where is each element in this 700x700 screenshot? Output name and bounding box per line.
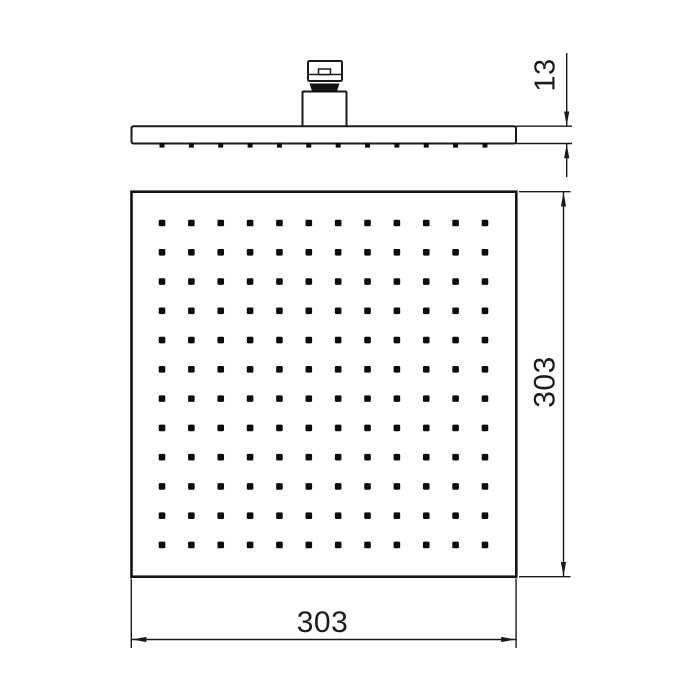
nozzle-dot [159,542,166,549]
nozzle-dot [159,512,166,519]
nozzle-dot [276,278,283,285]
nozzle-dot [247,542,254,549]
nozzle-dot [394,308,401,315]
nozzle-dot [306,395,313,402]
nozzle-dot [276,512,283,519]
nozzle-dot [423,249,430,256]
nozzle-dot [159,483,166,490]
nozzle-dot [306,249,313,256]
nozzle-dot [452,395,459,402]
nozzle-dot [335,425,342,432]
nozzle-dot [189,143,194,148]
nozzle-dot [247,454,254,461]
nozzle-dot [276,483,283,490]
nozzle-dot [364,483,371,490]
nozzle-dot [188,395,195,402]
thickness-dimension: 13 [516,53,572,177]
nozzle-dot [247,249,254,256]
nozzle-dot [452,512,459,519]
width-dimension: 303 [131,579,516,649]
nozzle-dot [394,337,401,344]
nozzle-dot [306,542,313,549]
nozzle-dot [247,337,254,344]
nozzle-dot [452,249,459,256]
nozzle-dot [482,366,489,373]
nozzle-dot [364,220,371,227]
nozzle-dot [394,425,401,432]
nozzle-dot [188,220,195,227]
nozzle-dot [394,366,401,373]
nozzle-dot [159,278,166,285]
nozzle-dot [482,395,489,402]
nozzle-dot [452,454,459,461]
nozzle-dot [423,366,430,373]
nozzle-dot [364,308,371,315]
nozzle-dot [217,512,224,519]
nozzle-dot [452,337,459,344]
nozzle-dot [423,425,430,432]
nozzle-dot [335,542,342,549]
arrow-down-icon [561,562,566,576]
arrow-right-icon [501,637,515,642]
nozzle-dot [188,249,195,256]
nozzle-dot [364,249,371,256]
nozzle-dot [306,278,313,285]
arrow-down-icon [564,112,569,126]
swivel-nut-cap [319,69,331,75]
nozzle-dot [482,308,489,315]
nozzle-dot [482,143,487,148]
nozzle-dot [306,366,313,373]
drawing-canvas: 13 303 303 [0,0,700,700]
nozzle-dot [247,366,254,373]
nozzle-dot [423,337,430,344]
nozzle-dot [482,278,489,285]
nozzle-dot [423,395,430,402]
nozzle-dot [247,395,254,402]
nozzle-dot [188,337,195,344]
nozzle-dot [188,308,195,315]
nozzle-dot [276,425,283,432]
nozzle-dot [364,366,371,373]
nozzle-dot [394,249,401,256]
nozzle-dot [364,278,371,285]
nozzle-dot [159,308,166,315]
nozzle-dot [482,542,489,549]
nozzle-dot [423,542,430,549]
arrow-up-icon [561,192,566,206]
connector-block [303,92,347,128]
nozzle-dot [394,143,399,148]
nozzle-dot [217,308,224,315]
nozzle-dot [335,395,342,402]
nozzle-dot [276,395,283,402]
nozzle-dot [424,143,429,148]
nozzle-dot [188,483,195,490]
nozzle-dot [247,425,254,432]
nozzle-dot [452,483,459,490]
nozzle-dot [188,542,195,549]
nozzle-dot [452,278,459,285]
nozzle-dot [159,425,166,432]
nozzle-dot [159,366,166,373]
nozzle-dot [335,220,342,227]
nozzle-dot [276,366,283,373]
arrow-left-icon [132,637,146,642]
nozzle-dot [306,220,313,227]
nozzle-dot [217,249,224,256]
nozzle-dot [276,249,283,256]
nozzle-dot [247,278,254,285]
nozzle-dot [159,454,166,461]
nozzle-dot [336,143,341,148]
nozzle-dot [306,425,313,432]
width-dimension-label: 303 [297,606,349,639]
nozzle-dot [247,512,254,519]
nozzle-dot [364,512,371,519]
nozzle-dot [482,337,489,344]
nozzle-dot [306,143,311,148]
nozzle-dot [247,483,254,490]
nozzle-dot [452,220,459,227]
nozzle-dot [188,278,195,285]
nozzle-dot [335,454,342,461]
nozzle-dot [276,220,283,227]
ball-joint-seal [310,84,340,93]
nozzle-dot [335,337,342,344]
nozzle-dot [482,512,489,519]
nozzle-dot [276,542,283,549]
nozzle-dot [394,454,401,461]
nozzle-dot [335,249,342,256]
nozzle-dot [188,512,195,519]
nozzle-dot [159,220,166,227]
nozzle-dot [306,454,313,461]
nozzle-dot [423,483,430,490]
nozzle-dot [159,395,166,402]
nozzle-dot [364,542,371,549]
nozzle-dot [217,542,224,549]
nozzle-dot [482,249,489,256]
nozzle-dot [423,512,430,519]
nozzle-dot [217,337,224,344]
nozzle-dot [423,308,430,315]
nozzle-dot [364,395,371,402]
nozzle-dot [276,308,283,315]
nozzle-dot [188,454,195,461]
nozzle-dot [394,512,401,519]
nozzle-dot [217,278,224,285]
nozzle-dot [335,278,342,285]
height-dimension: 303 [519,192,571,577]
nozzle-dot [482,220,489,227]
height-dimension-label: 303 [528,356,561,408]
nozzle-dot [217,395,224,402]
shower-plate-side [132,126,517,143]
nozzle-dot [218,143,223,148]
nozzle-dot [394,278,401,285]
nozzle-dot [394,395,401,402]
nozzle-dot [277,143,282,148]
nozzle-dot [394,542,401,549]
nozzle-dot [159,337,166,344]
arrow-up-icon [564,144,569,158]
nozzle-dot [423,278,430,285]
spray-face-view [132,192,517,577]
nozzle-dot [394,220,401,227]
nozzle-dot [306,337,313,344]
nozzle-dot [306,512,313,519]
nozzle-dot [335,512,342,519]
nozzle-dot [247,308,254,315]
nozzle-dot [159,249,166,256]
nozzle-dot [452,366,459,373]
nozzle-dot [306,483,313,490]
nozzle-dot [217,454,224,461]
nozzle-dot [160,143,165,148]
nozzle-dot [248,143,253,148]
nozzle-dot [364,454,371,461]
nozzle-dot [423,454,430,461]
nozzle-dot [335,308,342,315]
nozzle-dot [217,425,224,432]
nozzle-dot [482,425,489,432]
technical-drawing: 13 303 303 [0,0,700,700]
nozzle-dot [452,425,459,432]
nozzle-dot [335,483,342,490]
nozzle-dot [364,337,371,344]
nozzle-dot [423,220,430,227]
nozzle-dot [306,308,313,315]
nozzle-dot [217,366,224,373]
nozzle-dot [247,220,254,227]
nozzle-dot [188,366,195,373]
nozzle-dot [365,143,370,148]
nozzle-dot [452,308,459,315]
nozzle-dot [364,425,371,432]
side-profile-view [132,61,517,148]
nozzle-dot [453,143,458,148]
nozzle-dot [276,337,283,344]
nozzle-dot [217,483,224,490]
nozzle-dot [188,425,195,432]
nozzle-dot [217,220,224,227]
nozzle-dot [394,483,401,490]
nozzle-dot [482,483,489,490]
thickness-dimension-label: 13 [530,58,562,91]
nozzle-dot [276,454,283,461]
nozzle-dot [335,366,342,373]
nozzle-dot [482,454,489,461]
nozzle-dot [452,542,459,549]
